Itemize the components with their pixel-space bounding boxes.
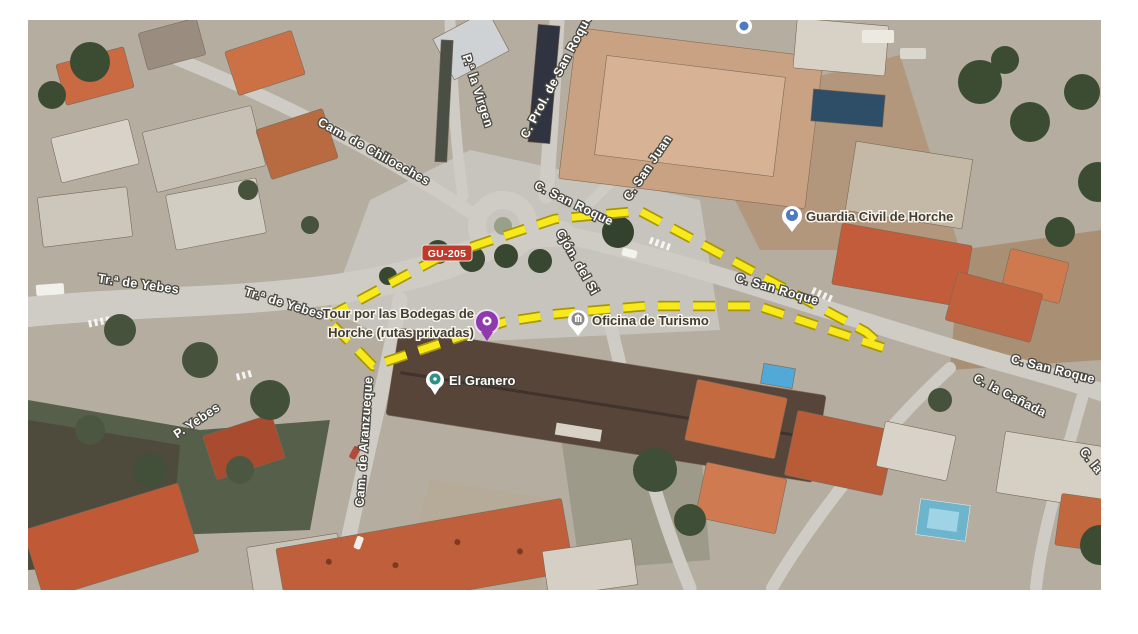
tour-icon-dot: [485, 319, 489, 323]
road-badge-gu205: GU-205: [422, 245, 472, 261]
poi-label-bodegas-line2[interactable]: Horche (rutas privadas): [328, 325, 474, 340]
screenshot-stage: GU-205: [0, 0, 1138, 634]
road-badge-text: GU-205: [428, 248, 467, 260]
granero-icon-dot: [433, 377, 437, 381]
poi-label-bodegas-line1[interactable]: Tour por las Bodegas de: [323, 306, 474, 321]
small-poi-icon: [740, 22, 749, 31]
satellite-canvas[interactable]: GU-205: [28, 20, 1101, 590]
guardia-emblem-dot: [790, 211, 794, 215]
map-frame: GU-205: [28, 20, 1101, 590]
poi-label-oficina-turismo[interactable]: Oficina de Turismo: [592, 313, 709, 328]
poi-label-el-granero[interactable]: El Granero: [449, 373, 516, 388]
poi-label-guardia-civil[interactable]: Guardia Civil de Horche: [806, 209, 953, 224]
